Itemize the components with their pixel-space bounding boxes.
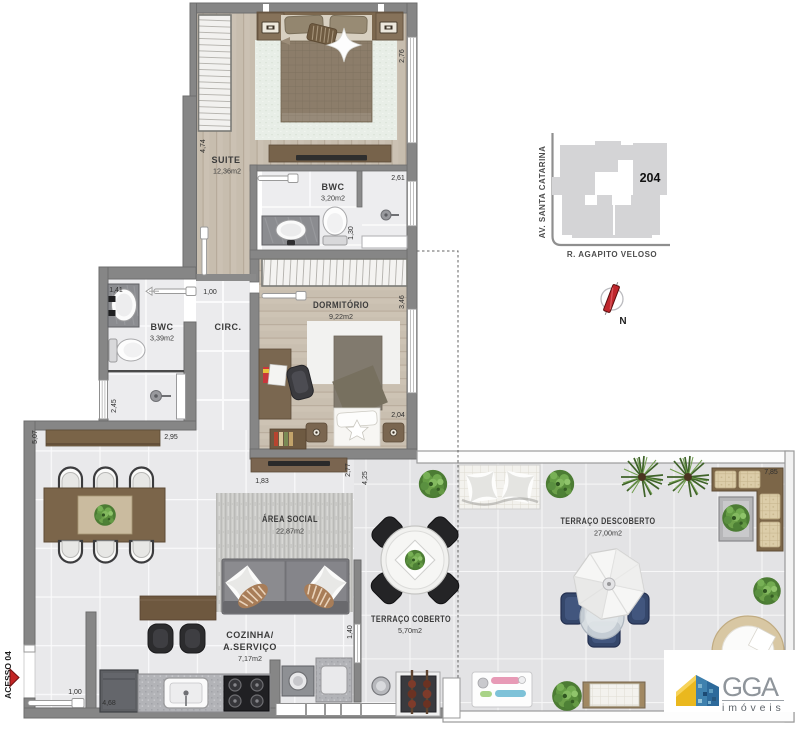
svg-text:2,95: 2,95 <box>164 434 178 441</box>
svg-text:9,22m2: 9,22m2 <box>329 312 353 321</box>
svg-text:BWC: BWC <box>322 182 345 192</box>
svg-text:COZINHA/: COZINHA/ <box>226 630 274 640</box>
svg-text:AV. SANTA CATARINA: AV. SANTA CATARINA <box>538 146 547 239</box>
svg-text:1,83: 1,83 <box>255 478 269 485</box>
svg-text:204: 204 <box>640 171 661 185</box>
svg-text:1,41: 1,41 <box>109 287 123 294</box>
svg-text:7,85: 7,85 <box>764 469 778 476</box>
svg-text:1,00: 1,00 <box>68 689 82 696</box>
svg-text:TERRAÇO DESCOBERTO: TERRAÇO DESCOBERTO <box>561 516 656 526</box>
svg-text:2,04: 2,04 <box>391 412 405 419</box>
svg-text:2,45: 2,45 <box>111 399 118 413</box>
svg-text:22,87m2: 22,87m2 <box>276 527 304 536</box>
svg-text:ÁREA SOCIAL: ÁREA SOCIAL <box>262 514 318 524</box>
svg-text:2,77: 2,77 <box>345 463 352 477</box>
svg-text:3,46: 3,46 <box>399 295 406 309</box>
svg-text:12,36m2: 12,36m2 <box>213 167 241 176</box>
svg-text:1,40: 1,40 <box>347 625 354 639</box>
svg-text:SUITE: SUITE <box>211 155 240 165</box>
svg-text:2,61: 2,61 <box>391 175 405 182</box>
svg-text:BWC: BWC <box>151 322 174 332</box>
svg-text:4,74: 4,74 <box>200 139 207 153</box>
svg-text:CIRC.: CIRC. <box>215 322 242 332</box>
svg-text:2,76: 2,76 <box>399 49 406 63</box>
svg-text:4,68: 4,68 <box>102 700 116 707</box>
svg-text:3,39m2: 3,39m2 <box>150 334 174 343</box>
svg-text:27,00m2: 27,00m2 <box>594 529 622 538</box>
svg-text:DORMITÓRIO: DORMITÓRIO <box>313 299 369 310</box>
svg-text:5,07: 5,07 <box>32 430 39 444</box>
svg-text:A.SERVIÇO: A.SERVIÇO <box>223 642 277 652</box>
svg-text:R. AGAPITO VELOSO: R. AGAPITO VELOSO <box>567 250 657 259</box>
svg-text:3,20m2: 3,20m2 <box>321 194 345 203</box>
svg-text:TERRAÇO COBERTO: TERRAÇO COBERTO <box>371 614 451 624</box>
svg-text:GGA: GGA <box>722 672 782 702</box>
svg-text:5,70m2: 5,70m2 <box>398 626 422 635</box>
svg-text:4,25: 4,25 <box>362 471 369 485</box>
svg-text:7,17m2: 7,17m2 <box>238 654 262 663</box>
svg-text:1,00: 1,00 <box>203 289 217 296</box>
svg-text:1,30: 1,30 <box>348 226 355 240</box>
svg-text:imóveis: imóveis <box>722 702 784 714</box>
svg-text:N: N <box>619 316 626 327</box>
